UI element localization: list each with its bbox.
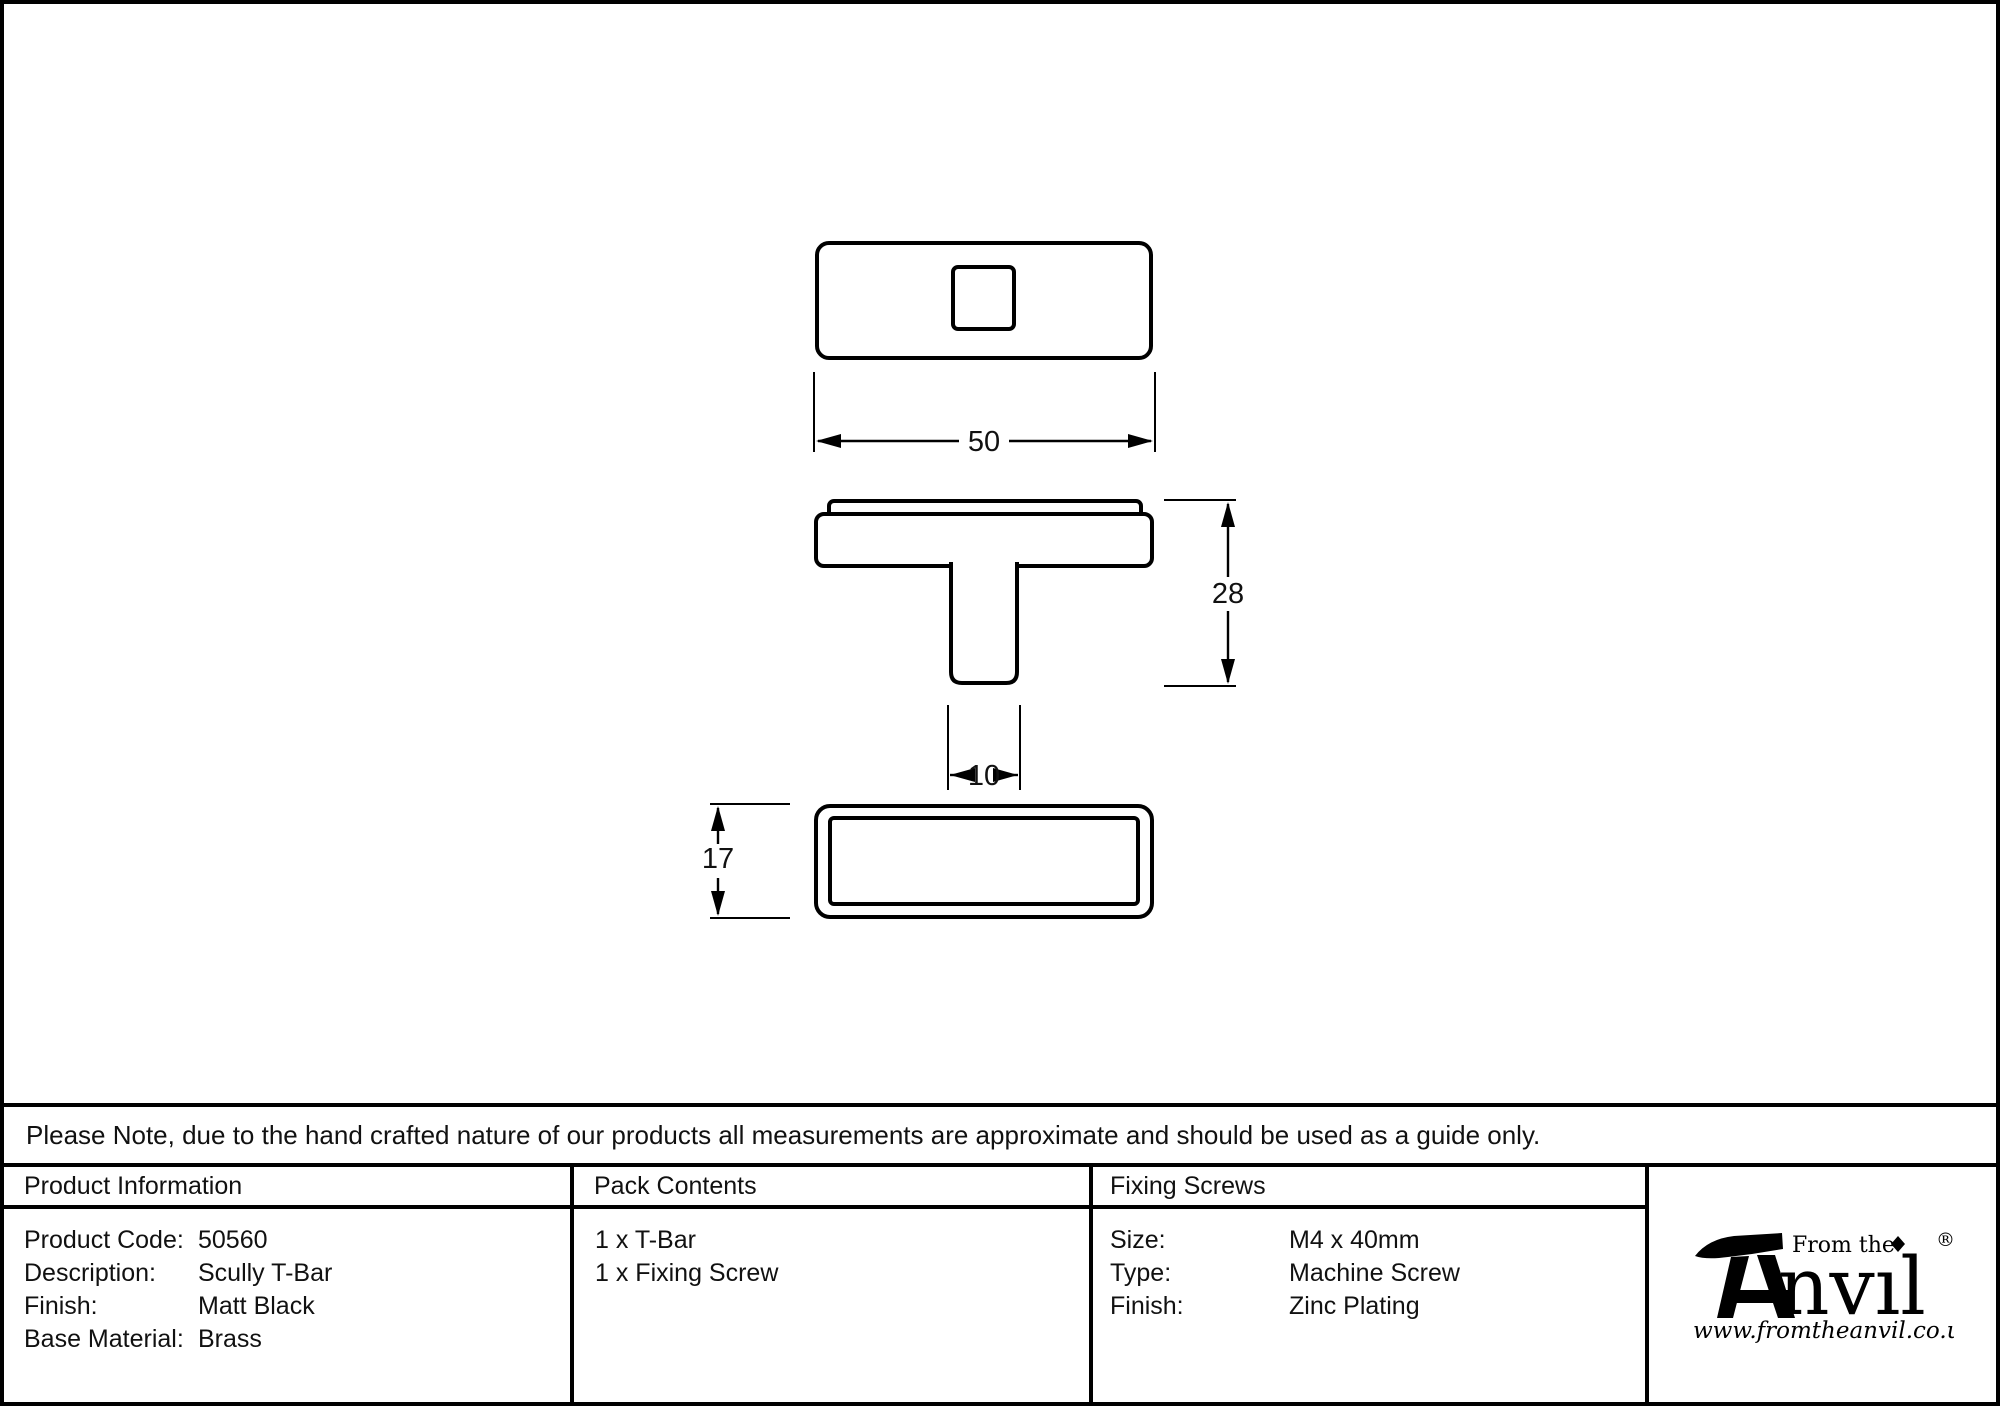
dimension-stem-width: 10 — [948, 705, 1020, 792]
measurement-note-text: Please Note, due to the hand crafted nat… — [26, 1120, 1540, 1151]
top-view-square-boss — [953, 267, 1014, 329]
brand-logo-cell: From the nvıl ® www.fromtheanvil.co.uk — [1649, 1167, 1996, 1402]
table-row: Finish: Zinc Plating — [1110, 1290, 1645, 1323]
side-view-stem — [951, 562, 1017, 683]
arrow-up-icon — [1221, 502, 1235, 527]
row-value: M4 x 40mm — [1289, 1224, 1645, 1257]
logo-website: www.fromtheanvil.co.uk — [1693, 1318, 1954, 1344]
row-label: Product Code: — [24, 1224, 198, 1257]
pack-contents-body: 1 x T-Bar 1 x Fixing Screw — [574, 1209, 1089, 1290]
row-value: Machine Screw — [1289, 1257, 1645, 1290]
row-label: Type: — [1110, 1257, 1289, 1290]
dimension-depth: 17 — [702, 804, 790, 918]
table-row: Finish: Matt Black — [24, 1290, 570, 1323]
from-the-anvil-logo: From the nvıl ® www.fromtheanvil.co.uk — [1692, 1226, 1954, 1344]
list-item: 1 x Fixing Screw — [595, 1257, 1089, 1290]
fixing-screws-column: Fixing Screws Size: M4 x 40mm Type: Mach… — [1093, 1167, 1649, 1402]
bottom-view-recess — [830, 818, 1138, 904]
fixing-screws-header: Fixing Screws — [1093, 1167, 1645, 1209]
table-row: Size: M4 x 40mm — [1110, 1224, 1645, 1257]
row-value: Scully T-Bar — [198, 1257, 570, 1290]
pack-contents-header: Pack Contents — [574, 1167, 1089, 1209]
dimension-height: 28 — [1164, 500, 1244, 686]
product-info-table: Product Information Product Code: 50560 … — [4, 1167, 1996, 1402]
dimension-stem-width-label: 10 — [968, 760, 1000, 792]
arrow-left-icon — [816, 434, 841, 448]
product-information-title: Product Information — [24, 1172, 242, 1201]
bottom-view — [816, 806, 1152, 917]
row-value: 50560 — [198, 1224, 570, 1257]
technical-drawing: 50 28 — [4, 4, 1996, 1103]
product-information-body: Product Code: 50560 Description: Scully … — [4, 1209, 570, 1356]
row-value: Matt Black — [198, 1290, 570, 1323]
row-label: Description: — [24, 1257, 198, 1290]
product-information-column: Product Information Product Code: 50560 … — [4, 1167, 574, 1402]
dimension-width-label: 50 — [968, 426, 1000, 458]
registered-trademark-icon: ® — [1936, 1229, 1954, 1251]
table-row: Type: Machine Screw — [1110, 1257, 1645, 1290]
side-view — [816, 501, 1152, 683]
arrow-down-icon — [711, 891, 725, 916]
pack-contents-title: Pack Contents — [594, 1172, 757, 1201]
row-label: Base Material: — [24, 1323, 198, 1356]
row-label: Finish: — [24, 1290, 198, 1323]
dimension-height-label: 28 — [1212, 578, 1244, 610]
arrow-right-icon — [1128, 434, 1153, 448]
fixing-screws-title: Fixing Screws — [1110, 1172, 1266, 1201]
fixing-screws-body: Size: M4 x 40mm Type: Machine Screw Fini… — [1093, 1209, 1645, 1323]
arrow-down-icon — [1221, 659, 1235, 684]
side-view-bar — [816, 514, 1152, 566]
dimension-width: 50 — [814, 372, 1155, 458]
table-row: Description: Scully T-Bar — [24, 1257, 570, 1290]
pack-contents-column: Pack Contents 1 x T-Bar 1 x Fixing Screw — [574, 1167, 1093, 1402]
arrow-up-icon — [711, 806, 725, 831]
table-row: Product Code: 50560 — [24, 1224, 570, 1257]
row-label: Size: — [1110, 1224, 1289, 1257]
row-label: Finish: — [1110, 1290, 1289, 1323]
list-item: 1 x T-Bar — [595, 1224, 1089, 1257]
dimension-depth-label: 17 — [702, 843, 734, 875]
row-value: Brass — [198, 1323, 570, 1356]
row-value: Zinc Plating — [1289, 1290, 1645, 1323]
spec-sheet-page: 50 28 — [0, 0, 2000, 1406]
table-row: Base Material: Brass — [24, 1323, 570, 1356]
top-view — [817, 243, 1151, 358]
product-information-header: Product Information — [4, 1167, 570, 1209]
drawing-canvas: 50 28 — [4, 4, 1996, 1103]
measurement-note-bar: Please Note, due to the hand crafted nat… — [4, 1103, 1996, 1167]
